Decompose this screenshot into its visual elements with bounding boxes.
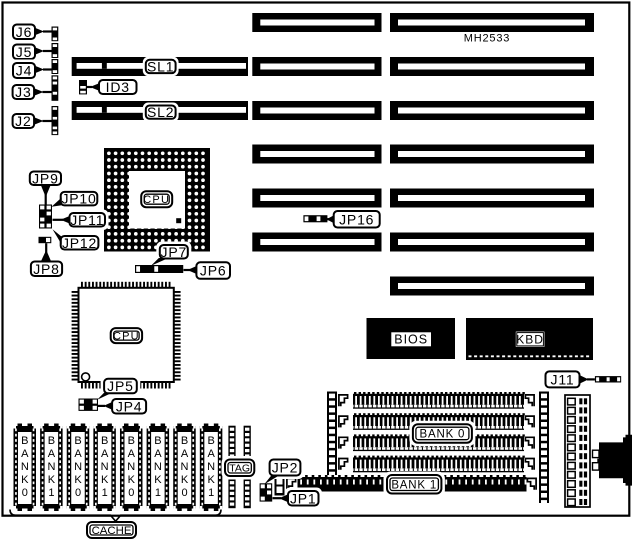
svg-text:K: K — [21, 474, 29, 486]
svg-text:JP12: JP12 — [62, 235, 97, 251]
svg-text:JP10: JP10 — [61, 191, 96, 207]
svg-text:TAG: TAG — [229, 463, 250, 475]
svg-text:J6: J6 — [16, 24, 32, 40]
svg-text:JP1: JP1 — [290, 490, 317, 506]
svg-text:B: B — [21, 435, 28, 447]
svg-text:SL1: SL1 — [147, 58, 174, 74]
svg-text:K: K — [48, 474, 56, 486]
svg-text:1: 1 — [102, 487, 108, 499]
svg-text:JP2: JP2 — [272, 460, 299, 476]
svg-text:B: B — [101, 435, 108, 447]
svg-text:0: 0 — [22, 487, 28, 499]
svg-text:JP16: JP16 — [339, 211, 374, 227]
svg-text:JP4: JP4 — [116, 398, 143, 414]
svg-text:CPU: CPU — [143, 194, 170, 206]
svg-text:N: N — [154, 461, 162, 473]
svg-text:B: B — [128, 435, 135, 447]
svg-text:B: B — [207, 435, 214, 447]
svg-text:1: 1 — [208, 487, 214, 499]
svg-text:N: N — [127, 461, 135, 473]
svg-text:JP6: JP6 — [200, 263, 227, 279]
svg-text:J2: J2 — [15, 113, 31, 129]
svg-text:A: A — [21, 448, 29, 460]
svg-text:A: A — [154, 448, 162, 460]
svg-text:ID3: ID3 — [106, 79, 130, 95]
svg-text:N: N — [181, 461, 189, 473]
svg-text:B: B — [181, 435, 188, 447]
svg-text:A: A — [128, 448, 136, 460]
svg-text:K: K — [74, 474, 82, 486]
svg-text:A: A — [207, 448, 215, 460]
svg-text:BANK 1: BANK 1 — [391, 479, 437, 491]
svg-text:0: 0 — [75, 487, 81, 499]
svg-text:BIOS: BIOS — [394, 332, 428, 346]
svg-text:0: 0 — [128, 487, 134, 499]
svg-text:JP5: JP5 — [107, 378, 134, 394]
svg-text:J5: J5 — [16, 44, 32, 60]
svg-text:B: B — [74, 435, 81, 447]
svg-text:CPU: CPU — [113, 331, 140, 343]
svg-text:JP11: JP11 — [70, 212, 104, 228]
svg-text:N: N — [74, 461, 82, 473]
svg-text:BANK 0: BANK 0 — [420, 429, 466, 441]
svg-text:A: A — [48, 448, 56, 460]
svg-text:CACHE: CACHE — [92, 525, 132, 537]
svg-text:A: A — [101, 448, 109, 460]
svg-text:N: N — [207, 461, 215, 473]
svg-text:MH2533: MH2533 — [464, 33, 510, 45]
svg-text:B: B — [154, 435, 161, 447]
svg-text:SL2: SL2 — [147, 104, 174, 120]
svg-text:JP9: JP9 — [32, 170, 59, 186]
svg-text:A: A — [181, 448, 189, 460]
svg-text:N: N — [47, 461, 55, 473]
svg-text:K: K — [154, 474, 162, 486]
svg-text:J3: J3 — [15, 84, 31, 100]
svg-text:K: K — [101, 474, 109, 486]
svg-text:K: K — [128, 474, 136, 486]
svg-text:1: 1 — [48, 487, 54, 499]
svg-text:KBD: KBD — [516, 332, 544, 346]
svg-text:B: B — [48, 435, 55, 447]
svg-text:JP7: JP7 — [161, 244, 188, 260]
svg-text:K: K — [181, 474, 189, 486]
svg-text:J4: J4 — [16, 63, 32, 79]
svg-text:A: A — [74, 448, 82, 460]
svg-text:K: K — [207, 474, 215, 486]
svg-text:1: 1 — [155, 487, 161, 499]
svg-text:N: N — [21, 461, 29, 473]
svg-text:J11: J11 — [551, 371, 575, 387]
svg-text:N: N — [101, 461, 109, 473]
svg-text:0: 0 — [181, 487, 187, 499]
svg-text:JP8: JP8 — [33, 261, 60, 277]
